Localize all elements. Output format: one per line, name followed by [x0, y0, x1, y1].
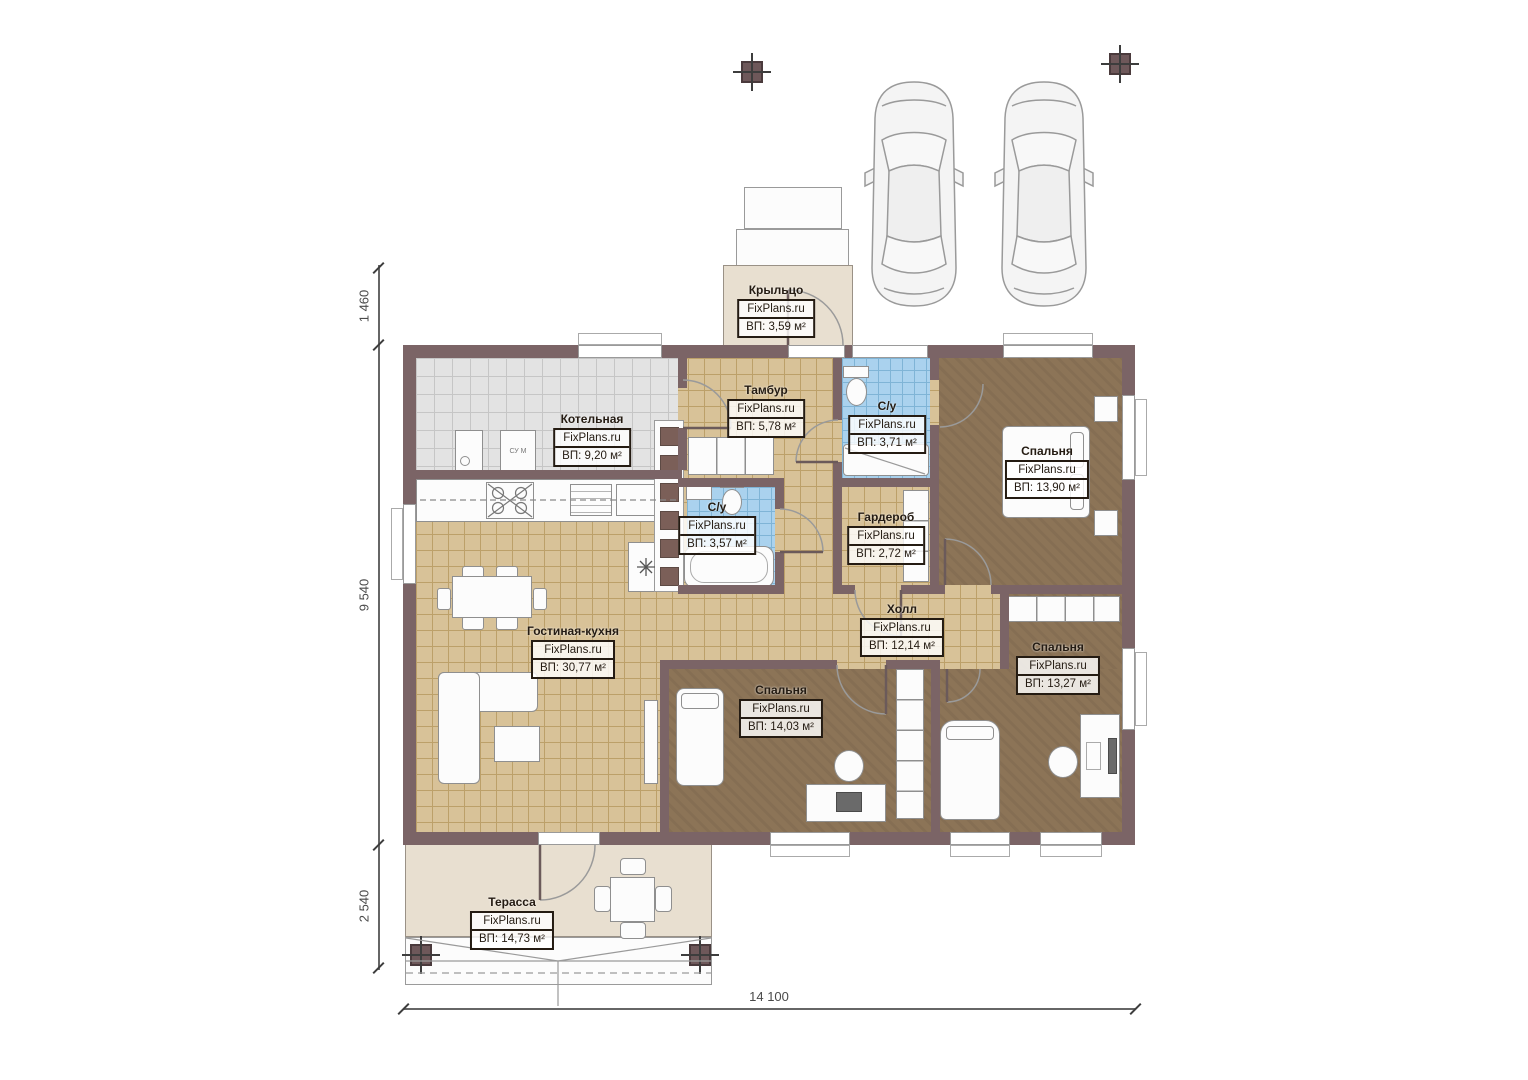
- pillow: [946, 726, 994, 740]
- wall-segment: [886, 660, 940, 669]
- dimension-line-left: [378, 265, 380, 970]
- window: [950, 832, 1010, 845]
- wall-segment: [833, 358, 842, 420]
- terrace-chair-right: [655, 886, 672, 912]
- room-label-living: Гостиная-кухня FixPlans.ru ВП: 30,77 м²: [527, 624, 619, 679]
- wall-segment: [775, 487, 784, 509]
- dining-chair: [496, 616, 518, 630]
- window: [1003, 345, 1093, 358]
- washing-machine: СУ М: [500, 430, 536, 472]
- room-area: ВП: 14,03 м²: [741, 719, 821, 735]
- terrace-stairs: [405, 937, 712, 985]
- room-label-tambur: Тамбур FixPlans.ru ВП: 5,78 м²: [727, 383, 805, 438]
- room-label-wc-top: С/у FixPlans.ru ВП: 3,71 м²: [848, 399, 926, 454]
- coffee-table: [494, 726, 540, 762]
- room-info-box: FixPlans.ru ВП: 2,72 м²: [847, 526, 925, 565]
- dining-table: [452, 576, 532, 618]
- boiler-unit: [455, 430, 483, 472]
- room-label-wc-mid: С/у FixPlans.ru ВП: 3,57 м²: [678, 500, 756, 555]
- kitchen-appliance: [616, 484, 656, 516]
- room-info-box: FixPlans.ru ВП: 30,77 м²: [531, 640, 615, 679]
- column-axis-line: [420, 936, 422, 974]
- dimension-value: 1 460: [357, 290, 372, 323]
- column-axis-line: [751, 53, 753, 91]
- wall-segment: [660, 669, 669, 832]
- closet-shelving: [1008, 596, 1120, 622]
- wall-segment: [833, 478, 939, 487]
- room-area: ВП: 2,72 м²: [849, 546, 923, 562]
- room-area: ВП: 13,90 м²: [1007, 480, 1087, 496]
- room-area: ВП: 30,77 м²: [533, 660, 613, 676]
- wall-segment: [931, 669, 940, 832]
- corner-sofa: [438, 672, 480, 784]
- dining-chair: [462, 616, 484, 630]
- entry-closet: [688, 437, 774, 475]
- room-name: С/у: [878, 399, 897, 413]
- wall-segment: [1000, 594, 1009, 669]
- chimney-flue: [660, 511, 679, 530]
- window: [1122, 395, 1135, 480]
- room-info-box: FixPlans.ru ВП: 3,57 м²: [678, 516, 756, 555]
- room-label-hall: Холл FixPlans.ru ВП: 12,14 м²: [860, 602, 944, 657]
- door-opening: [538, 832, 600, 845]
- room-area: ВП: 9,20 м²: [555, 448, 629, 464]
- brand-watermark: FixPlans.ru: [741, 701, 821, 719]
- pillow: [681, 693, 719, 709]
- room-label-wardrobe: Гардероб FixPlans.ru ВП: 2,72 м²: [847, 510, 925, 565]
- kitchen-sink-unit: [570, 484, 612, 516]
- wall-segment: [833, 585, 855, 594]
- room-label-boiler: Котельная FixPlans.ru ВП: 9,20 м²: [553, 412, 631, 467]
- room-info-box: FixPlans.ru ВП: 12,14 м²: [860, 618, 944, 657]
- terrace-chair-top: [620, 858, 646, 875]
- washing-machine-label: СУ М: [501, 431, 535, 471]
- room-info-box: FixPlans.ru ВП: 13,90 м²: [1005, 460, 1089, 499]
- keyboard: [1086, 742, 1101, 770]
- room-name: Гардероб: [858, 510, 915, 524]
- room-label-terrace: Терасса FixPlans.ru ВП: 14,73 м²: [470, 895, 554, 950]
- room-area: ВП: 12,14 м²: [862, 638, 942, 654]
- room-name: Котельная: [561, 412, 624, 426]
- window-sill: [1135, 399, 1147, 476]
- room-label-bedroom-right: Спальня FixPlans.ru ВП: 13,27 м²: [1016, 640, 1100, 695]
- window-sill: [578, 333, 662, 345]
- dimension-line-bottom: [403, 1008, 1135, 1010]
- brand-watermark: FixPlans.ru: [850, 417, 924, 435]
- wall-segment: [416, 470, 682, 479]
- dimension-value: 2 540: [357, 890, 372, 923]
- chimney-flue: [660, 427, 679, 446]
- column-axis-line: [699, 936, 701, 974]
- brand-watermark: FixPlans.ru: [533, 642, 613, 660]
- wall-segment: [930, 425, 939, 594]
- wall-segment: [991, 585, 1122, 594]
- room-label-porch: Крыльцо FixPlans.ru ВП: 3,59 м²: [737, 283, 815, 338]
- brand-watermark: FixPlans.ru: [862, 620, 942, 638]
- brand-watermark: FixPlans.ru: [555, 430, 629, 448]
- desk-chair: [834, 750, 864, 782]
- wardrobe-cabinet: [896, 669, 924, 819]
- terrace-chair-bottom: [620, 922, 646, 939]
- computer: [836, 792, 862, 812]
- room-name: Спальня: [1032, 640, 1084, 654]
- door-opening: [788, 345, 845, 358]
- window: [852, 345, 928, 358]
- room-name: Спальня: [1021, 444, 1073, 458]
- toilet-tank: [843, 366, 869, 378]
- column-axis-line: [1119, 45, 1121, 83]
- dining-chair: [533, 588, 547, 610]
- room-name: Спальня: [755, 683, 807, 697]
- room-info-box: FixPlans.ru ВП: 5,78 м²: [727, 399, 805, 438]
- wall-segment: [678, 585, 784, 594]
- room-info-box: FixPlans.ru ВП: 9,20 м²: [553, 428, 631, 467]
- window: [1122, 648, 1135, 730]
- floor-plan-canvas: СУ М: [0, 0, 1528, 1080]
- dining-chair: [437, 588, 451, 610]
- wall-segment: [660, 660, 837, 669]
- room-area: ВП: 3,59 м²: [739, 319, 813, 335]
- brand-watermark: FixPlans.ru: [1018, 658, 1098, 676]
- dimension-value: 9 540: [357, 579, 372, 612]
- room-info-box: FixPlans.ru ВП: 3,71 м²: [848, 415, 926, 454]
- room-area: ВП: 3,57 м²: [680, 536, 754, 552]
- window-sill: [391, 508, 403, 580]
- window: [1040, 832, 1102, 845]
- room-info-box: FixPlans.ru ВП: 14,73 м²: [470, 911, 554, 950]
- room-label-bedroom-top: Спальня FixPlans.ru ВП: 13,90 м²: [1005, 444, 1089, 499]
- stove: [486, 482, 534, 519]
- room-area: ВП: 13,27 м²: [1018, 676, 1098, 692]
- boiler-unit-dial: [460, 456, 470, 466]
- desk-chair: [1048, 746, 1078, 778]
- room-name: Тамбур: [744, 383, 788, 397]
- wall-segment: [930, 358, 939, 380]
- nightstand: [1094, 396, 1118, 422]
- room-info-box: FixPlans.ru ВП: 14,03 м²: [739, 699, 823, 738]
- brand-watermark: FixPlans.ru: [849, 528, 923, 546]
- entry-step-upper: [744, 187, 842, 229]
- window: [403, 504, 416, 584]
- brand-watermark: FixPlans.ru: [1007, 462, 1087, 480]
- window-sill: [950, 845, 1010, 857]
- wall-segment: [833, 462, 842, 478]
- terrace-table: [610, 877, 655, 922]
- room-name: Холл: [887, 602, 917, 616]
- wall-segment: [403, 345, 416, 845]
- room-name: Гостиная-кухня: [527, 624, 619, 638]
- wall-segment: [930, 585, 945, 594]
- room-label-bedroom-mid: Спальня FixPlans.ru ВП: 14,03 м²: [739, 683, 823, 738]
- brand-watermark: FixPlans.ru: [472, 913, 552, 931]
- chimney-flue: [660, 539, 679, 558]
- chimney-flue: [660, 567, 679, 586]
- car-top-view: [992, 76, 1096, 312]
- room-area: ВП: 5,78 м²: [729, 419, 803, 435]
- wall-segment: [678, 428, 687, 470]
- room-info-box: FixPlans.ru ВП: 13,27 м²: [1016, 656, 1100, 695]
- room-info-box: FixPlans.ru ВП: 3,59 м²: [737, 299, 815, 338]
- dimension-value: 14 100: [749, 989, 789, 1004]
- wall-segment: [678, 478, 784, 487]
- window-sill: [1003, 333, 1093, 345]
- room-name: Терасса: [488, 895, 536, 909]
- room-name: Крыльцо: [749, 283, 804, 297]
- room-name: С/у: [708, 500, 727, 514]
- brand-watermark: FixPlans.ru: [680, 518, 754, 536]
- window-sill: [1040, 845, 1102, 857]
- window: [578, 345, 662, 358]
- chimney-flue: [660, 483, 679, 502]
- bathtub-inner: [690, 551, 768, 583]
- window: [770, 832, 850, 845]
- terrace-chair-left: [594, 886, 611, 912]
- window-sill: [1135, 652, 1147, 726]
- nightstand: [1094, 510, 1118, 536]
- wall-segment: [403, 832, 1135, 845]
- entry-step-lower: [736, 229, 849, 267]
- room-area: ВП: 3,71 м²: [850, 435, 924, 451]
- room-area: ВП: 14,73 м²: [472, 931, 552, 947]
- window-sill: [770, 845, 850, 857]
- wall-segment: [833, 487, 842, 594]
- car-top-view: [862, 76, 966, 312]
- computer: [1108, 738, 1117, 774]
- wall-segment: [678, 358, 687, 388]
- brand-watermark: FixPlans.ru: [729, 401, 803, 419]
- brand-watermark: FixPlans.ru: [739, 301, 813, 319]
- tv-stand: [644, 700, 658, 784]
